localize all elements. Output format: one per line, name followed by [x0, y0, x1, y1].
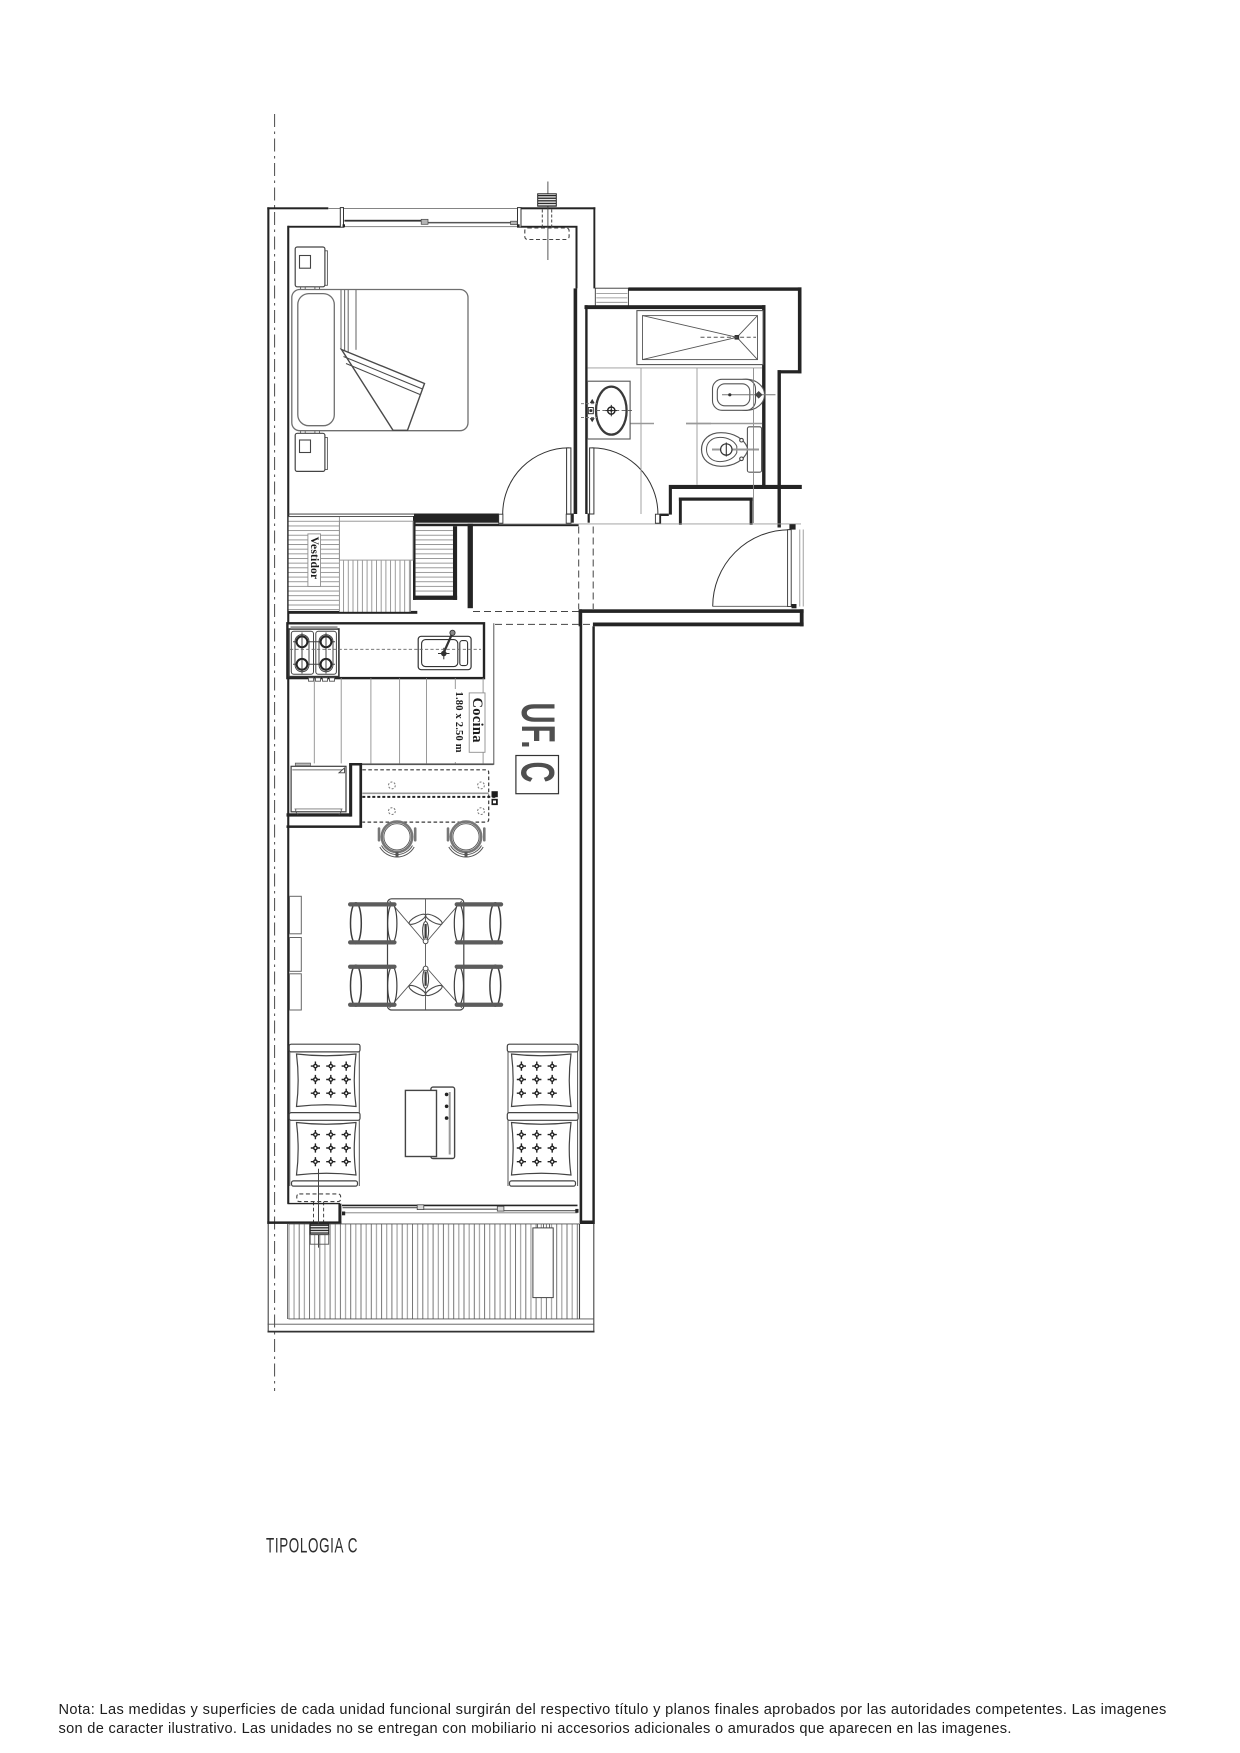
svg-text:son de caracter ilustrativo. L: son de caracter ilustrativo. Las unidade… [59, 1721, 1012, 1737]
svg-text:Vestidor: Vestidor [308, 537, 320, 580]
svg-text:UF.: UF. [511, 703, 563, 750]
svg-text:Cocina: Cocina [469, 698, 485, 744]
svg-text:Nota: Las medidas y superficie: Nota: Las medidas y superficies de cada … [59, 1702, 1167, 1718]
svg-text:TIPOLOGIA C: TIPOLOGIA C [266, 1533, 358, 1557]
svg-text:1.80 x 2.50 m: 1.80 x 2.50 m [453, 692, 464, 753]
svg-text:C: C [511, 762, 563, 783]
